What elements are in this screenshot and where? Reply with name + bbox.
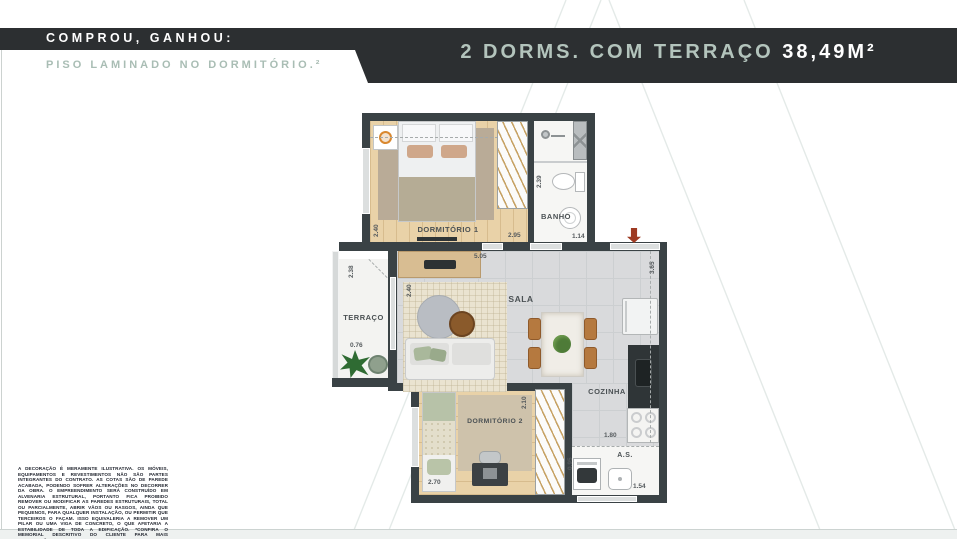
promo-title: COMPROU, GANHOU: — [46, 31, 234, 45]
blanket-pattern — [423, 421, 455, 455]
dorm1-tv — [417, 237, 457, 241]
dim-as-w: 1.54 — [633, 483, 646, 490]
room-label-dorm1: DORMITÓRIO 1 — [398, 225, 498, 234]
burner — [631, 412, 642, 423]
dim-terraco-w: 0.76 — [350, 342, 363, 349]
pillow-green — [427, 459, 451, 475]
dim-banho-w: 1.14 — [572, 233, 585, 240]
fridge — [622, 298, 658, 335]
washer-door — [577, 468, 597, 483]
legal-disclaimer: A DECORAÇÃO É MERAMENTE ILUSTRATIVA. OS … — [18, 466, 168, 539]
room-label-cozinha: COZINHA — [572, 387, 642, 396]
terrace-railing — [332, 251, 339, 387]
duct-shaft — [573, 121, 587, 160]
page-left-border — [1, 28, 2, 530]
as-divider-dashline — [572, 446, 659, 447]
dining-chair — [584, 318, 597, 340]
room-label-banho: BANHO — [534, 212, 578, 221]
burner — [631, 427, 642, 438]
blanket-green — [423, 393, 455, 421]
dim-dorm2-h: 2.10 — [521, 396, 528, 409]
dim-sala-w: 5.05 — [474, 253, 487, 260]
dim-dorm1-w: 2.95 — [508, 232, 521, 239]
wall — [659, 251, 667, 502]
tank-drain — [618, 477, 622, 481]
room-label-terraco: TERRAÇO — [339, 313, 388, 322]
dim-dorm1-h: 2.40 — [373, 224, 380, 237]
dim-cozinha-w: 1.80 — [604, 432, 617, 439]
promo-subtitle: PISO LAMINADO NO DORMITÓRIO.² — [46, 59, 322, 71]
kitchen-counter — [628, 345, 659, 408]
wall — [587, 113, 595, 251]
laundry-tank — [608, 468, 632, 490]
door-banho — [530, 243, 562, 250]
shower-head-icon — [541, 130, 550, 139]
sofa — [405, 338, 495, 380]
window-dorm2 — [411, 407, 419, 467]
green-pillow — [429, 348, 447, 363]
door-dorm1 — [482, 243, 503, 250]
toilet-bowl — [552, 173, 575, 190]
dim-dorm2-w: 2.70 — [428, 479, 441, 486]
pillow-tan — [407, 145, 433, 158]
dorm2-closet — [535, 389, 565, 495]
desk — [472, 463, 508, 486]
floor-plan: DORMITÓRIO 1 2.40 2.95 BANHO 2.39 1.14 T… — [332, 112, 668, 504]
terrace-glass-door — [390, 277, 396, 350]
dim-line-cozinha — [650, 251, 651, 443]
shower-divider — [534, 161, 587, 163]
dim-cozinha-h: 3.65 — [649, 261, 656, 274]
table-plant-icon — [553, 335, 571, 353]
plan-title: 2 DORMS. COM TERRAÇO 38,49M² — [380, 41, 957, 64]
room-label-as: A.S. — [610, 452, 640, 459]
sofa-cushion — [452, 343, 491, 365]
tv-icon — [424, 260, 456, 269]
wall — [565, 383, 572, 502]
tv-sideboard — [398, 251, 481, 278]
pillow-tan — [441, 145, 467, 158]
dining-chair — [584, 347, 597, 369]
dorm2-bed — [422, 392, 456, 492]
entry-arrow-icon — [627, 228, 641, 243]
blanket — [399, 177, 475, 221]
pillow — [402, 124, 436, 142]
room-label-dorm2: DORMITÓRIO 2 — [452, 418, 538, 425]
dim-as-h: 0.95 — [567, 457, 574, 470]
entry-door — [610, 243, 660, 250]
plant-icon — [368, 355, 388, 374]
flyer-page: COMPROU, GANHOU: PISO LAMINADO NO DORMIT… — [0, 0, 957, 539]
room-label-sala: SALA — [491, 294, 551, 304]
plan-title-text: 2 DORMS. COM TERRAÇO — [460, 41, 773, 63]
dim-terraco-h: 2.38 — [348, 265, 355, 278]
dim-banho-h: 2.39 — [536, 175, 543, 188]
fridge-handle — [625, 301, 627, 332]
plan-area-value: 38,49M² — [782, 41, 876, 63]
washing-machine — [573, 458, 601, 490]
dorm1-closet — [497, 121, 528, 209]
window-dorm1 — [362, 148, 370, 214]
stove — [627, 408, 659, 443]
dining-chair — [528, 347, 541, 369]
dining-chair — [528, 318, 541, 340]
dim-sala-h: 2.40 — [406, 284, 413, 297]
side-table — [449, 311, 475, 337]
laptop-icon — [483, 468, 497, 479]
wall — [528, 113, 534, 243]
washer-panel — [577, 462, 597, 465]
wall — [362, 113, 595, 121]
pillow — [439, 124, 473, 142]
shower-arm — [551, 135, 565, 137]
window-as — [577, 496, 637, 502]
toilet-tank — [575, 172, 585, 192]
